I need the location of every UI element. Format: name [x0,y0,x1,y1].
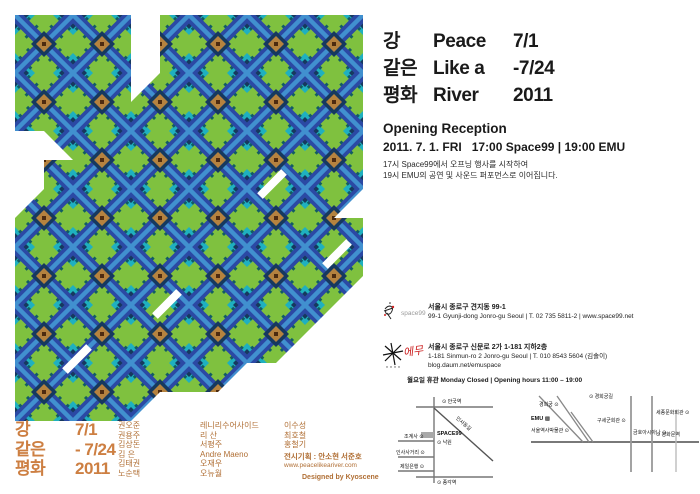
quilt-cell [44,15,73,44]
quilt-cell [131,189,160,218]
list-item: 최호철 [284,431,306,441]
quilt-cell [189,102,218,131]
quilt-cell [131,276,160,305]
quilt-cell [247,276,276,305]
map-label-anguk: ⊙ 안국역 [442,399,461,405]
quilt-cell [305,305,334,334]
quilt-cell [73,363,102,392]
quilt-cell [73,392,102,421]
quilt-cell [160,160,189,189]
quilt-cell [247,334,276,363]
map-label-jonggak: ⊙ 종각역 [437,480,456,486]
quilt-cell [131,247,160,276]
reception-heading: Opening Reception [383,121,625,136]
venue-list: space99 서울시 종로구 견지동 99-1 99-1 Gyunji-don… [381,301,696,385]
quilt-cell [102,189,131,218]
list-item: 김태권 [118,459,140,469]
quilt-cell [102,247,131,276]
emu-address-en: 1-181 Sinmun-ro 2 Jonro-gu Seoul | T. 01… [428,352,607,361]
quilt-cell [276,334,305,363]
quilt-cell [305,160,334,189]
list-item: 노순택 [118,469,140,479]
quilt-cell [218,218,247,247]
quilt-cell [15,218,44,247]
quilt-cell [189,15,218,44]
quilt-cell [15,363,44,392]
quilt-cell [73,247,102,276]
quilt-cell [102,334,131,363]
quilt-cell [15,15,44,44]
list-item: 7/1 [75,420,115,440]
quilt-cell [276,218,305,247]
quilt-cell [44,160,73,189]
quilt-cell [276,44,305,73]
quilt-cell [218,305,247,334]
opening-hours: 월요일 휴관 Monday Closed | Opening hours 11:… [407,374,582,384]
title-kr: 평화 [383,82,433,109]
quilt-cell [334,15,363,44]
venue-space99: space99 서울시 종로구 견지동 99-1 99-1 Gyunji-don… [381,301,696,332]
quilt-cell [218,334,247,363]
quilt-cell [131,102,160,131]
list-item: 김상돈 [118,440,140,450]
quilt-cell [334,102,363,131]
quilt-cell [160,363,189,392]
quilt-cell [276,247,305,276]
quilt-cell [189,305,218,334]
quilt-cell [73,189,102,218]
quilt-cell [15,44,44,73]
artist-list-3: 이수성최호철홍철기 [284,421,306,450]
quilt-cell [189,247,218,276]
quilt-cell [276,102,305,131]
quilt-cell [276,305,305,334]
quilt-cell [189,73,218,102]
list-item: 홍철기 [284,440,306,450]
emu-logo-icon: 에무 [381,341,428,376]
list-item: 강 [15,420,75,440]
space99-address-kr: 서울시 종로구 견지동 99-1 [428,303,634,312]
quilt-cell [334,276,363,305]
quilt-cell [73,305,102,334]
list-item: 오재우 [200,459,259,469]
list-item: 권오준 [118,421,140,431]
title-date: 2011 [513,82,554,109]
quilt-cell [305,131,334,160]
credits-title-dates: 7/1- 7/242011 [75,420,115,479]
quilt-cell [131,131,160,160]
credits-title: 강같은평화 7/1- 7/242011 [15,420,115,479]
website-url: www.peacelikeariver.com [284,461,379,470]
quilt-cell [102,131,131,160]
organizer-line: 전시기획 : 안소현 서준호 [284,452,379,461]
quilt-cell [44,189,73,218]
map-label-salvation-army: 구세군회관 ⊙ [597,418,626,424]
map-label-bank: 제일은행 ⊙ [400,464,424,470]
quilt-cell [276,15,305,44]
quilt-cell [44,247,73,276]
quilt-cell [305,15,334,44]
quilt-cell [102,305,131,334]
map-label-sejong-center: 세종문화회관 ⊙ [656,410,689,416]
list-item: 평화 [15,459,75,479]
quilt-cell [334,160,363,189]
quilt-cell [160,189,189,218]
designer-credit: Designed by Kyoscene [302,474,379,481]
quilt-cell [160,15,189,44]
quilt-cell [247,44,276,73]
quilt-cell [189,160,218,189]
quilt-cell [102,160,131,189]
quilt-cell [218,189,247,218]
list-item: 이수성 [284,421,306,431]
quilt-cell [131,305,160,334]
quilt-cell [102,276,131,305]
title-row: 강 Peace 7/1 [383,28,554,55]
quilt-cell [15,305,44,334]
quilt-cell [247,305,276,334]
credits-title-kr: 강같은평화 [15,420,75,479]
quilt-cell [276,73,305,102]
quilt-cell [102,218,131,247]
map-label-emu: EMU ▩ [531,416,550,422]
quilt-cell [218,73,247,102]
quilt-cell [160,334,189,363]
quilt-cell [305,44,334,73]
quilt-cell [15,247,44,276]
quilt-cell [247,218,276,247]
quilt-cell [131,363,160,392]
list-item: 리 산 [200,431,259,441]
quilt-cell [334,44,363,73]
quilt-cell [305,102,334,131]
quilt-cell [160,102,189,131]
quilt-cell [305,276,334,305]
list-item: 오뉴월 [200,469,259,479]
quilt-cell [73,15,102,44]
quilt-cell [160,218,189,247]
quilt-cell [73,276,102,305]
quilt-cell [15,334,44,363]
quilt-cell [334,189,363,218]
quilt-cell [247,102,276,131]
artist-list-2: 레니리수어사이드리 산서평주Andre Maeno오재우오뉴월 [200,421,259,479]
list-item: 레니리수어사이드 [200,421,259,431]
quilt-cell [160,131,189,160]
reception-desc-line1: 17시 Space99에서 오프닝 행사를 시작하여 [383,160,625,171]
quilt-cell [218,44,247,73]
quilt-cell [44,44,73,73]
quilt-cell [276,189,305,218]
quilt-cell [189,44,218,73]
quilt-cell [15,189,44,218]
credits-meta: 전시기획 : 안소현 서준호 www.peacelikeariver.com D… [284,452,379,481]
quilt-cell [247,131,276,160]
quilt-cell [44,276,73,305]
quilt-cell [44,218,73,247]
title-kr: 강 [383,28,433,55]
quilt-cell [189,276,218,305]
list-item: 김 은 [118,450,140,460]
quilt-cell [218,160,247,189]
map-label-gyeonghui-st: ⊙ 경희궁길 [589,394,613,400]
emu-logo-text: 에무 [402,342,424,361]
title-row: 같은 Like a -7/24 [383,55,554,82]
emu-address-kr: 서울시 종로구 신문로 2가 1-181 지하2층 [428,343,607,352]
quilt-cell [73,131,102,160]
emu-address-web: blog.daum.net/emuspace [428,361,607,370]
quilt-pattern-graphic [15,15,363,421]
emu-map: ⊙ 경희궁길 경희궁 ⊙ EMU ▩ 서울역사박물관 ⊙ 구세군회관 ⊙ 금호아… [531,392,700,474]
map-label-jogyesa: 조계사 ⊙ [404,434,423,440]
space99-logo-text: space99 [401,310,426,317]
space99-logo-icon: space99 [381,301,428,332]
quilt-cell [131,334,160,363]
quilt-cell [102,363,131,392]
title-date: -7/24 [513,55,554,82]
quilt-cell [189,131,218,160]
quilt-cell [218,15,247,44]
quilt-cell [305,73,334,102]
title-en: Peace [433,28,513,55]
map-label-gyeonghuigung: 경희궁 ⊙ [539,402,558,408]
quilt-cell [15,102,44,131]
quilt-cell [102,392,131,421]
quilt-cell [131,73,160,102]
quilt-cell [44,131,73,160]
quilt-cell [15,392,44,421]
quilt-cell [73,160,102,189]
map-label-gwanghwamun: ⊙ 광화문역 [656,432,680,438]
quilt-cell [247,247,276,276]
venue-emu: 에무 서울시 종로구 신문로 2가 1-181 지하2층 1-181 Sinmu… [381,341,696,376]
quilt-cell [218,276,247,305]
quilt-cell [73,218,102,247]
title-en: River [433,82,513,109]
artist-list-1: 권오준권용주김상돈김 은김태권노순택 [118,421,140,479]
quilt-cell [73,102,102,131]
quilt-cell [102,73,131,102]
quilt-cell [44,334,73,363]
map-label-nagwon: ⊙ 낙원 [437,440,452,446]
quilt-cell [102,102,131,131]
quilt-cell [305,189,334,218]
quilt-cell [247,15,276,44]
map-label-history-museum: 서울역사박물관 ⊙ [531,428,569,434]
quilt-cell [44,305,73,334]
quilt-cell [218,363,247,392]
quilt-cell [276,276,305,305]
quilt-cell [15,276,44,305]
space99-address-en: 99-1 Gyunji-dong Jonro-gu Seoul | T. 02 … [428,312,634,321]
poster-root: 강 Peace 7/1 같은 Like a -7/24 평화 River 201… [0,0,700,494]
quilt-cell [73,73,102,102]
list-item: Andre Maeno [200,450,259,460]
quilt-cell [15,73,44,102]
reception-desc-line2: 19시 EMU의 공연 및 사운드 퍼포먼스로 이어집니다. [383,171,625,182]
quilt-cell [218,131,247,160]
quilt-cell [189,218,218,247]
title-block: 강 Peace 7/1 같은 Like a -7/24 평화 River 201… [383,28,554,109]
quilt-cell [44,102,73,131]
quilt-cell [189,363,218,392]
space99-map: ⊙ 안국역 인사동길 SPACE99 ⊙ 낙원 조계사 ⊙ 인사사거리 ⊙ 제일… [396,395,494,489]
map-label-space99: SPACE99 [437,431,462,437]
reception-block: Opening Reception 2011. 7. 1. FRI 17:00 … [383,121,625,181]
quilt-cell [189,334,218,363]
quilt-cell [131,160,160,189]
quilt-cell [131,392,160,421]
quilt-cell [102,44,131,73]
reception-datetime: 2011. 7. 1. FRI 17:00 Space99 | 19:00 EM… [383,140,625,154]
title-en: Like a [433,55,513,82]
quilt-cell [44,73,73,102]
quilt-cell [189,189,218,218]
quilt-cell [102,15,131,44]
quilt-cell [44,392,73,421]
quilt-cell [305,218,334,247]
list-item: 서평주 [200,440,259,450]
quilt-cell [334,131,363,160]
quilt-cell [247,73,276,102]
title-kr: 같은 [383,55,433,82]
quilt-cell [218,102,247,131]
quilt-cell [218,247,247,276]
map-label-insa-crossing: 인사사거리 ⊙ [396,450,425,456]
list-item: 같은 [15,440,75,460]
title-row: 평화 River 2011 [383,82,554,109]
quilt-cell [276,131,305,160]
list-item: 2011 [75,459,115,479]
quilt-cell [160,73,189,102]
list-item: 권용주 [118,431,140,441]
quilt-cell [73,44,102,73]
quilt-cell [160,44,189,73]
list-item: - 7/24 [75,440,115,460]
title-date: 7/1 [513,28,554,55]
quilt-cell [334,73,363,102]
quilt-cell [160,247,189,276]
quilt-cell [131,218,160,247]
